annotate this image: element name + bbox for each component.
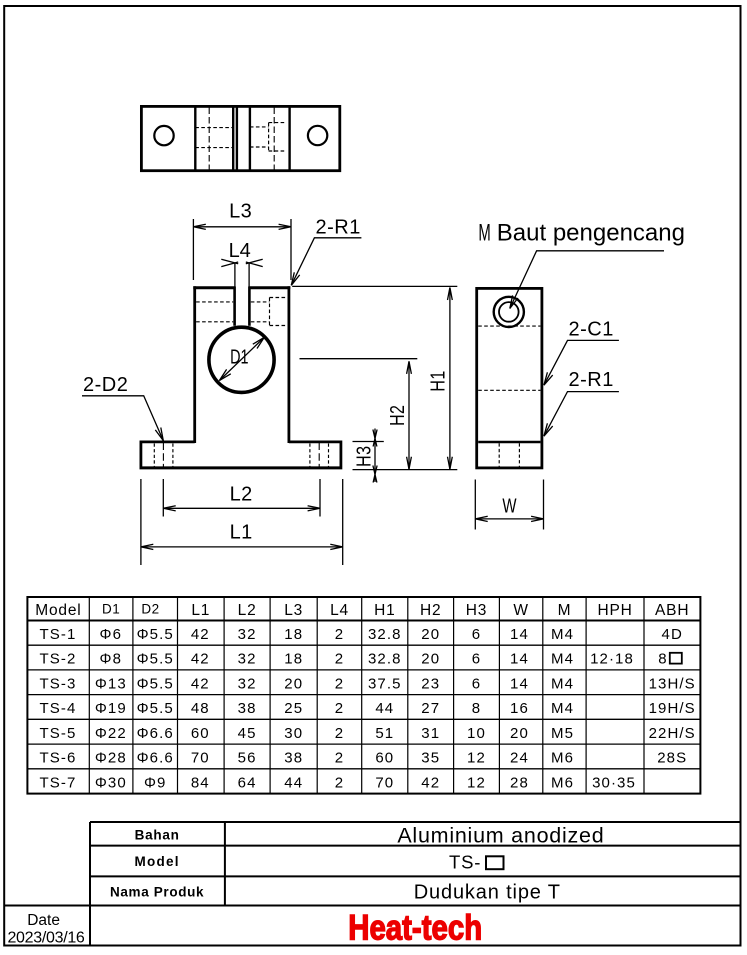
svg-text:6: 6 [472, 626, 481, 643]
svg-text:Model: Model [134, 854, 179, 869]
svg-text:D2: D2 [141, 602, 159, 617]
svg-text:42: 42 [191, 626, 210, 643]
svg-text:TS-1: TS-1 [40, 626, 77, 643]
svg-text:35: 35 [421, 750, 440, 767]
svg-text:M4: M4 [551, 700, 574, 717]
svg-text:Φ5.5: Φ5.5 [137, 675, 174, 692]
svg-text:TS-7: TS-7 [40, 774, 77, 791]
svg-text:48: 48 [191, 700, 210, 717]
svg-text:12: 12 [467, 774, 486, 791]
svg-text:23: 23 [421, 675, 440, 692]
svg-text:Dudukan tipe T: Dudukan tipe T [414, 881, 561, 903]
svg-text:L3: L3 [284, 602, 303, 619]
svg-text:H1: H1 [427, 370, 449, 391]
svg-text:HPH: HPH [598, 602, 633, 619]
svg-text:18: 18 [284, 626, 303, 643]
svg-text:Φ13: Φ13 [95, 675, 127, 692]
svg-text:L2: L2 [230, 483, 253, 505]
svg-text:2: 2 [335, 675, 344, 692]
svg-text:M6: M6 [551, 774, 574, 791]
svg-text:TS-3: TS-3 [40, 675, 77, 692]
svg-text:D1: D1 [102, 602, 120, 617]
svg-text:44: 44 [375, 700, 394, 717]
svg-text:L4: L4 [229, 240, 251, 262]
svg-text:Heat-tech: Heat-tech [348, 908, 482, 947]
svg-text:12·18: 12·18 [590, 651, 634, 668]
svg-text:10: 10 [467, 725, 486, 742]
svg-text:Φ5.5: Φ5.5 [137, 626, 174, 643]
svg-text:32: 32 [238, 675, 257, 692]
svg-text:M: M [558, 602, 572, 619]
svg-text:2: 2 [335, 725, 344, 742]
svg-text:13H/S: 13H/S [649, 675, 696, 692]
svg-text:14: 14 [510, 626, 529, 643]
svg-text:6: 6 [472, 651, 481, 668]
svg-text:30: 30 [284, 725, 303, 742]
svg-text:32.8: 32.8 [368, 626, 402, 643]
svg-text:2: 2 [335, 626, 344, 643]
svg-text:M: M [478, 220, 490, 246]
svg-text:2-R1: 2-R1 [569, 369, 614, 391]
svg-text:20: 20 [284, 675, 303, 692]
svg-text:84: 84 [191, 774, 210, 791]
svg-text:38: 38 [284, 750, 303, 767]
svg-text:M4: M4 [551, 675, 574, 692]
svg-text:32: 32 [238, 651, 257, 668]
svg-text:12: 12 [467, 750, 486, 767]
svg-text:Φ30: Φ30 [95, 774, 127, 791]
svg-text:28: 28 [510, 774, 529, 791]
svg-text:H2: H2 [420, 602, 441, 619]
svg-text:Baut pengencang: Baut pengencang [497, 219, 685, 246]
svg-text:W: W [513, 602, 528, 619]
svg-text:42: 42 [191, 675, 210, 692]
svg-text:L2: L2 [238, 602, 257, 619]
svg-text:L3: L3 [229, 201, 252, 223]
svg-text:Aluminium anodized: Aluminium anodized [397, 823, 604, 847]
svg-text:Φ6.6: Φ6.6 [137, 750, 174, 767]
svg-text:M6: M6 [551, 750, 574, 767]
svg-text:2: 2 [335, 750, 344, 767]
svg-text:Φ6.6: Φ6.6 [137, 725, 174, 742]
svg-text:38: 38 [238, 700, 257, 717]
svg-text:Φ8: Φ8 [100, 651, 123, 668]
svg-text:18: 18 [284, 651, 303, 668]
svg-text:TS-4: TS-4 [40, 700, 77, 717]
svg-text:Bahan: Bahan [135, 828, 180, 843]
svg-text:Φ19: Φ19 [95, 700, 127, 717]
svg-text:2: 2 [335, 774, 344, 791]
svg-text:30·35: 30·35 [592, 774, 636, 791]
svg-text:ABH: ABH [655, 602, 689, 619]
svg-text:2023/03/16: 2023/03/16 [7, 929, 84, 946]
svg-text:2-D2: 2-D2 [83, 374, 128, 396]
svg-text:Nama Produk: Nama Produk [110, 884, 204, 899]
svg-text:TS-6: TS-6 [40, 750, 77, 767]
svg-text:45: 45 [238, 725, 257, 742]
svg-text:L1: L1 [230, 522, 253, 544]
svg-text:19H/S: 19H/S [649, 700, 696, 717]
svg-text:42: 42 [191, 651, 210, 668]
svg-text:Φ28: Φ28 [95, 750, 127, 767]
svg-text:2: 2 [335, 651, 344, 668]
svg-text:20: 20 [510, 725, 529, 742]
svg-text:60: 60 [191, 725, 210, 742]
svg-text:25: 25 [284, 700, 303, 717]
svg-text:14: 14 [510, 675, 529, 692]
svg-text:20: 20 [421, 626, 440, 643]
svg-text:M4: M4 [551, 626, 574, 643]
svg-text:6: 6 [472, 675, 481, 692]
svg-text:Φ6: Φ6 [100, 626, 123, 643]
svg-text:Date: Date [27, 912, 60, 929]
svg-text:M5: M5 [551, 725, 574, 742]
svg-text:TS-: TS- [449, 851, 481, 872]
svg-text:60: 60 [375, 750, 394, 767]
svg-text:4D: 4D [662, 626, 683, 643]
svg-text:22H/S: 22H/S [649, 725, 696, 742]
svg-text:27: 27 [421, 700, 440, 717]
svg-text:37.5: 37.5 [368, 675, 402, 692]
svg-text:32: 32 [238, 626, 257, 643]
svg-text:Φ5.5: Φ5.5 [137, 700, 174, 717]
svg-text:70: 70 [375, 774, 394, 791]
svg-text:42: 42 [421, 774, 440, 791]
svg-text:TS-2: TS-2 [40, 651, 77, 668]
svg-text:Φ9: Φ9 [144, 774, 167, 791]
svg-text:H1: H1 [374, 602, 395, 619]
svg-text:44: 44 [284, 774, 303, 791]
svg-text:2-C1: 2-C1 [569, 318, 614, 340]
svg-text:H2: H2 [386, 405, 408, 426]
svg-text:56: 56 [238, 750, 257, 767]
svg-text:H3: H3 [466, 602, 487, 619]
svg-text:14: 14 [510, 651, 529, 668]
svg-text:2-R1: 2-R1 [316, 216, 361, 238]
svg-text:H3: H3 [353, 446, 375, 467]
svg-text:D1: D1 [230, 345, 248, 368]
svg-text:TS-5: TS-5 [40, 725, 77, 742]
svg-text:24: 24 [510, 750, 529, 767]
svg-text:M4: M4 [551, 651, 574, 668]
svg-text:2: 2 [335, 700, 344, 717]
svg-text:51: 51 [375, 725, 394, 742]
svg-text:64: 64 [238, 774, 257, 791]
svg-text:70: 70 [191, 750, 210, 767]
svg-text:Φ22: Φ22 [95, 725, 127, 742]
svg-text:16: 16 [510, 700, 529, 717]
svg-text:8: 8 [658, 651, 667, 668]
svg-text:Model: Model [35, 602, 81, 619]
svg-text:L4: L4 [330, 602, 349, 619]
svg-text:Φ5.5: Φ5.5 [137, 651, 174, 668]
svg-text:W: W [502, 495, 516, 518]
svg-text:L1: L1 [191, 602, 210, 619]
svg-text:20: 20 [421, 651, 440, 668]
svg-text:32.8: 32.8 [368, 651, 402, 668]
svg-text:31: 31 [421, 725, 440, 742]
svg-text:8: 8 [472, 700, 481, 717]
svg-text:28S: 28S [657, 750, 687, 767]
